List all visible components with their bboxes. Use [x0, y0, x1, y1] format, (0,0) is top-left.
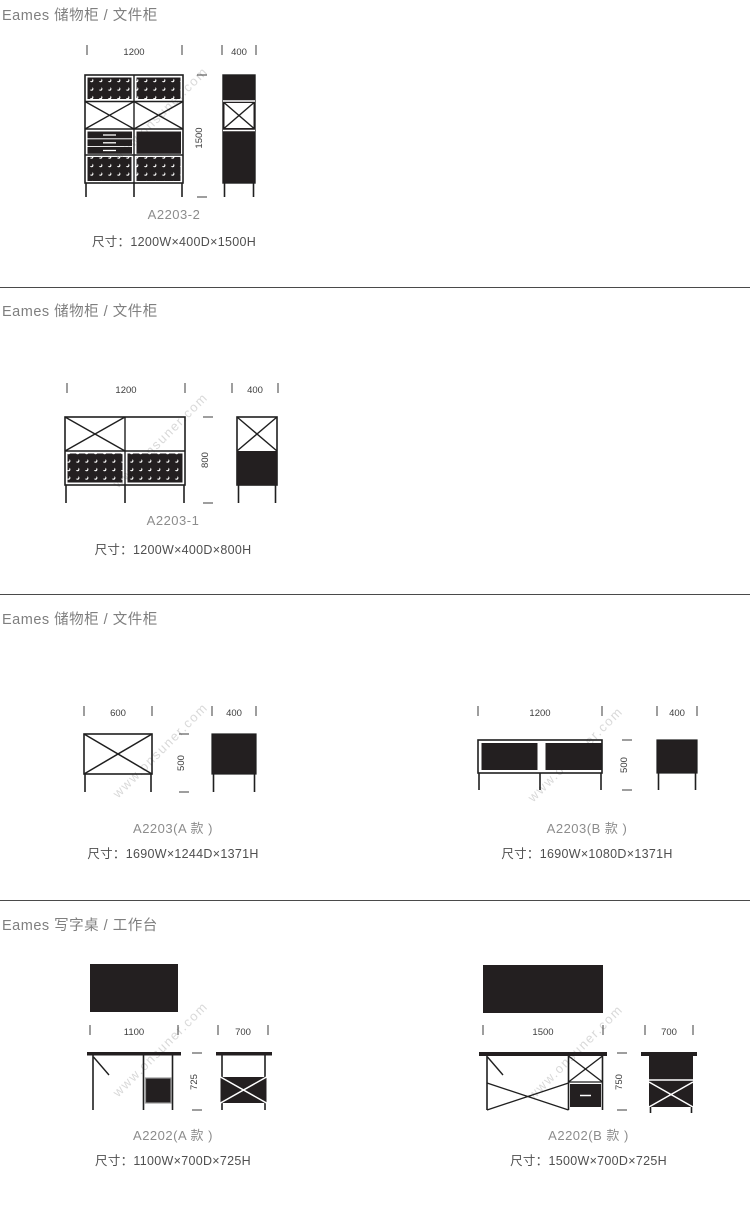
- svg-text:1100: 1100: [124, 1027, 144, 1038]
- svg-text:400: 400: [247, 385, 263, 396]
- front-view: [478, 740, 602, 790]
- side-view: [212, 734, 256, 792]
- height-dimension: 725: [189, 1053, 202, 1110]
- width-dimension: 1100 700: [90, 1025, 268, 1038]
- size-label: 尺寸：1200W×400D×1500H: [60, 231, 288, 250]
- svg-text:500: 500: [176, 755, 187, 771]
- top-view: [90, 964, 178, 1012]
- front-view: [479, 1052, 607, 1110]
- height-dimension: 750: [614, 1053, 627, 1110]
- height-dimension: 1500: [194, 75, 207, 197]
- section-divider: [0, 287, 750, 288]
- side-view: [641, 1052, 697, 1113]
- side-view: [657, 740, 697, 790]
- a2203-1-drawing: 1200 400 800: [55, 380, 285, 510]
- size-label: 尺寸：1690W×1080D×1371H: [476, 843, 698, 862]
- section-title: Eames 储物柜 / 文件柜: [2, 4, 158, 25]
- front-view: [65, 417, 185, 503]
- svg-text:700: 700: [661, 1027, 677, 1038]
- front-view: [87, 1052, 181, 1110]
- a2203-2-drawing: 1200 400: [60, 42, 280, 204]
- a2202-b-drawing: 1500 700: [465, 955, 710, 1115]
- svg-text:1500: 1500: [194, 127, 205, 148]
- front-view: [84, 734, 152, 792]
- svg-text:1200: 1200: [529, 708, 550, 719]
- model-label: A2203(A 款 ): [62, 818, 284, 837]
- svg-text:400: 400: [231, 47, 247, 58]
- a2203-b-drawing: 1200 400 500: [465, 700, 710, 800]
- size-label: 尺寸：1500W×700D×725H: [476, 1150, 701, 1169]
- svg-text:1500: 1500: [532, 1027, 553, 1038]
- height-dimension: 800: [200, 417, 213, 503]
- width-dimension: 1200 400: [87, 45, 256, 58]
- side-view: [216, 1052, 272, 1110]
- section-divider: [0, 900, 750, 901]
- section-title: Eames 储物柜 / 文件柜: [2, 300, 158, 321]
- front-view: [85, 75, 183, 197]
- spec-sheet-page: www.onsuner.com www.onsuner.com www.onsu…: [0, 0, 750, 1212]
- model-label: A2203(B 款 ): [476, 818, 698, 837]
- section-title: Eames 储物柜 / 文件柜: [2, 608, 158, 629]
- model-label: A2203-1: [58, 513, 288, 528]
- size-label: 尺寸：1100W×700D×725H: [62, 1150, 284, 1169]
- width-dimension: 1200 400: [67, 383, 278, 396]
- top-view: [483, 965, 603, 1013]
- section-title: Eames 写字桌 / 工作台: [2, 914, 158, 935]
- svg-text:725: 725: [189, 1074, 200, 1090]
- svg-text:1200: 1200: [123, 47, 144, 58]
- side-view: [237, 417, 277, 503]
- height-dimension: 500: [619, 740, 632, 790]
- svg-text:400: 400: [669, 708, 685, 719]
- model-label: A2202(B 款 ): [476, 1125, 701, 1144]
- svg-text:400: 400: [226, 708, 242, 719]
- size-label: 尺寸：1200W×400D×800H: [58, 539, 288, 558]
- model-label: A2202(A 款 ): [62, 1125, 284, 1144]
- svg-text:700: 700: [235, 1027, 251, 1038]
- model-label: A2203-2: [60, 207, 288, 222]
- width-dimension: 1200 400: [478, 706, 697, 719]
- section-divider: [0, 594, 750, 595]
- width-dimension: 1500 700: [483, 1025, 693, 1038]
- svg-text:1200: 1200: [115, 385, 136, 396]
- svg-text:600: 600: [110, 708, 126, 719]
- a2202-a-drawing: 1100 700 725: [70, 955, 285, 1115]
- svg-text:500: 500: [619, 757, 630, 773]
- svg-text:800: 800: [200, 452, 211, 468]
- a2203-a-drawing: 600 400 500: [70, 700, 285, 800]
- side-view: [223, 75, 255, 197]
- svg-text:750: 750: [614, 1074, 625, 1090]
- height-dimension: 500: [176, 734, 189, 792]
- width-dimension: 600 400: [84, 706, 256, 719]
- size-label: 尺寸：1690W×1244D×1371H: [62, 843, 284, 862]
